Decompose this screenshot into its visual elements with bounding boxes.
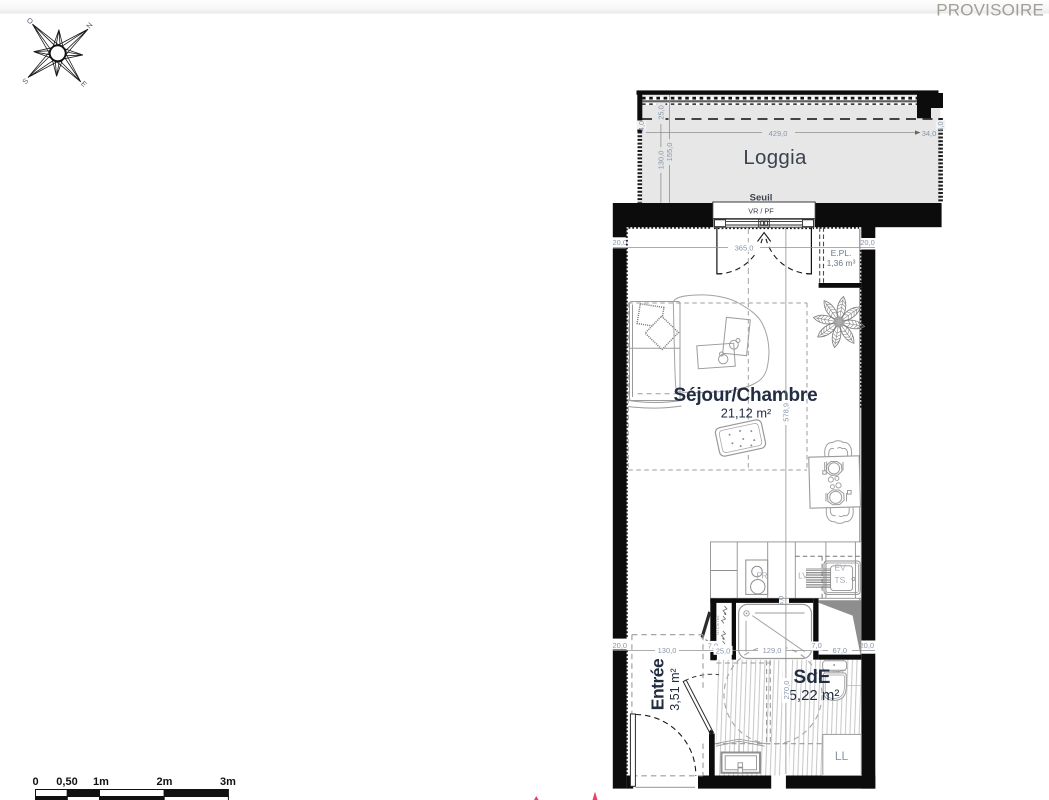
svg-text:0: 0 (32, 776, 38, 788)
svg-text:20,0: 20,0 (612, 238, 627, 247)
svg-text:Seuil: Seuil (750, 193, 773, 204)
svg-text:20,0: 20,0 (612, 641, 627, 650)
svg-text:4,0: 4,0 (936, 121, 945, 131)
svg-text:4,0: 4,0 (637, 121, 646, 131)
svg-text:GTL ETEL: GTL ETEL (715, 615, 720, 635)
svg-text:FR: FR (756, 571, 767, 581)
svg-text:25,0: 25,0 (657, 105, 666, 120)
svg-text:1,36 m³: 1,36 m³ (827, 258, 856, 268)
svg-text:1m: 1m (93, 776, 109, 788)
svg-text:155,0: 155,0 (665, 143, 674, 162)
svg-text:129,0: 129,0 (763, 646, 782, 655)
svg-text:5,22 m²: 5,22 m² (789, 687, 840, 704)
svg-text:270,0: 270,0 (782, 681, 791, 700)
svg-text:0,50: 0,50 (56, 776, 77, 788)
svg-text:Séjour/Chambre: Séjour/Chambre (674, 385, 818, 406)
svg-text:34,0: 34,0 (922, 129, 937, 138)
svg-text:Entrée: Entrée (648, 658, 668, 710)
svg-text:7,0: 7,0 (811, 641, 821, 650)
svg-text:3m: 3m (220, 776, 236, 788)
svg-text:21,12 m²: 21,12 m² (721, 406, 772, 421)
svg-text:130,0: 130,0 (658, 646, 677, 655)
svg-text:SdE: SdE (794, 667, 831, 688)
svg-text:130,0: 130,0 (657, 151, 666, 170)
svg-text:20,0: 20,0 (859, 641, 874, 650)
svg-text:LV: LV (798, 571, 808, 581)
svg-text:20,0: 20,0 (860, 238, 875, 247)
svg-text:TS.: TS. (834, 575, 847, 585)
svg-text:2m: 2m (157, 776, 173, 788)
svg-text:LL: LL (835, 749, 849, 763)
svg-text:EV: EV (834, 563, 846, 573)
svg-text:429,0: 429,0 (769, 129, 788, 138)
svg-text:VR / PF: VR / PF (748, 206, 774, 215)
svg-text:E.PL.: E.PL. (831, 248, 852, 258)
svg-text:365,0: 365,0 (735, 244, 754, 253)
svg-text:PROVISOIRE: PROVISOIRE (936, 1, 1044, 20)
svg-text:3,51 m²: 3,51 m² (668, 668, 682, 710)
svg-text:67,0: 67,0 (832, 646, 847, 655)
svg-text:Loggia: Loggia (743, 146, 807, 169)
svg-text:25,0: 25,0 (716, 647, 731, 656)
svg-text:578,9: 578,9 (782, 403, 791, 422)
